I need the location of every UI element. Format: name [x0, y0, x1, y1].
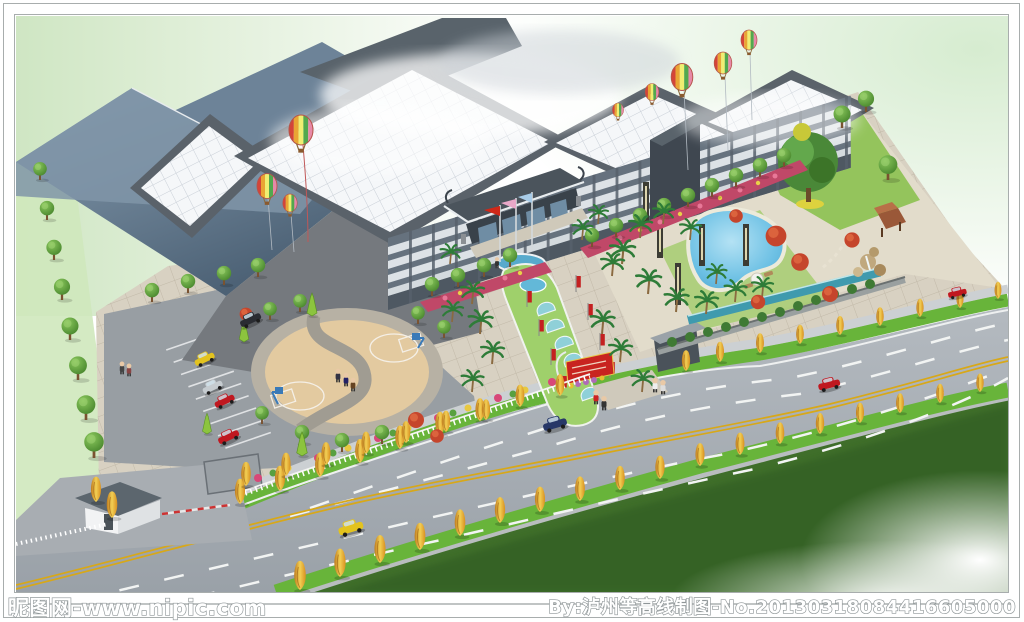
architectural-rendering-page: 昵图网-www.nipic.com By:泸州等高线制图-No.20130318…	[0, 0, 1024, 622]
rendering-content	[16, 16, 1024, 622]
rendering-canvas: 昵图网-www.nipic.com By:泸州等高线制图-No.20130318…	[0, 0, 1024, 622]
yellow-bush	[793, 123, 811, 141]
watermark-right: By:泸州等高线制图-No.20130318084416605000	[548, 596, 1016, 618]
watermark-left: 昵图网-www.nipic.com	[8, 596, 267, 620]
